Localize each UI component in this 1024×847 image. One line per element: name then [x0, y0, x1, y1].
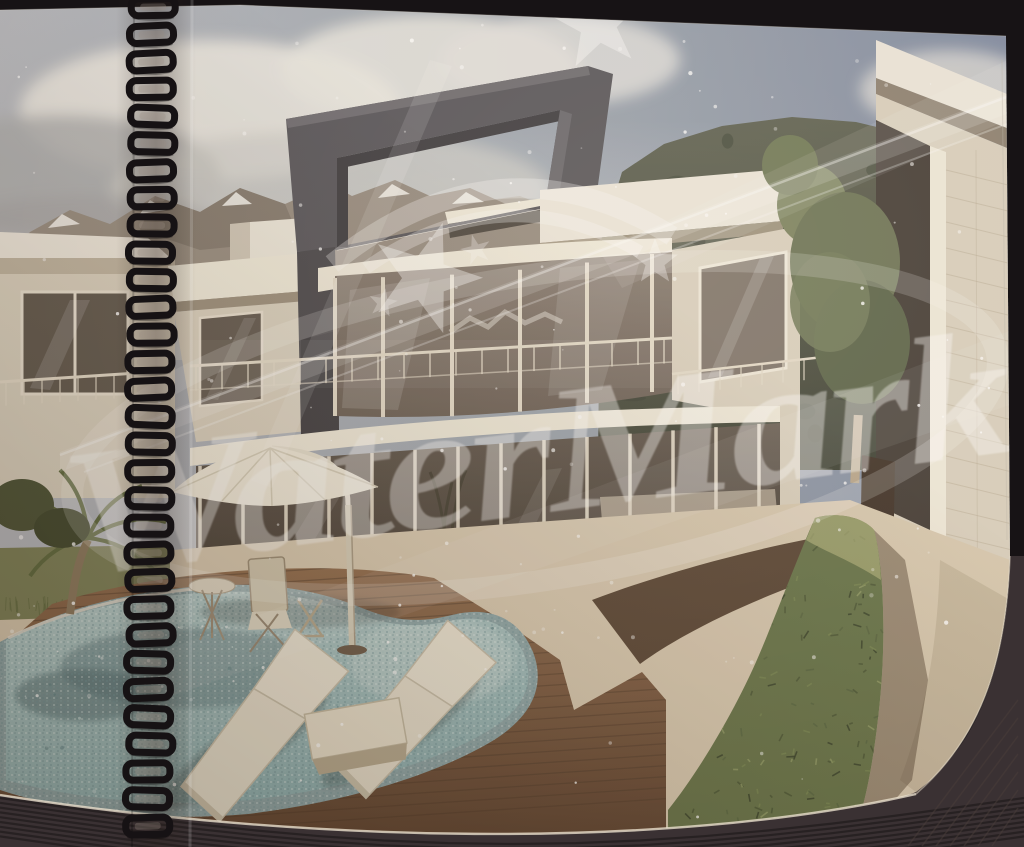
loop-slot [136, 385, 162, 393]
loop-slot [139, 112, 165, 120]
loop-slot [136, 522, 162, 529]
loop-slot [140, 3, 166, 10]
loop-slot [138, 30, 164, 38]
loop-slot [140, 140, 166, 148]
loop-slot [138, 303, 164, 311]
villa-rendering-photo: WaterMark [0, 0, 1024, 847]
loop-slot [135, 822, 161, 830]
loop-slot [137, 249, 163, 256]
loop-slot [135, 685, 161, 693]
loop-slot [138, 85, 164, 92]
loop-slot [135, 713, 161, 721]
loop-slot [138, 631, 164, 639]
page-crease [190, 0, 192, 847]
loop-slot [139, 222, 165, 229]
loop-slot [138, 740, 164, 748]
loop-slot [138, 276, 164, 283]
loop-slot [136, 658, 162, 666]
loop-slot [137, 495, 163, 503]
loop-slot [139, 331, 165, 338]
loop-slot [137, 576, 163, 584]
spiral-binding [116, 0, 196, 847]
loop-slot [136, 549, 162, 557]
loop-slot [134, 795, 160, 803]
loop-slot [138, 167, 164, 175]
loop-slot [137, 412, 163, 420]
loop-slot [137, 440, 163, 448]
loop-slot [135, 768, 161, 775]
loop-slot [139, 194, 165, 201]
loop-slot [138, 57, 164, 65]
loop-slot [136, 604, 162, 612]
loop-slot [137, 358, 163, 365]
photo-of-brochure-page: WaterMark [0, 0, 1024, 847]
loop-slot [137, 467, 163, 474]
